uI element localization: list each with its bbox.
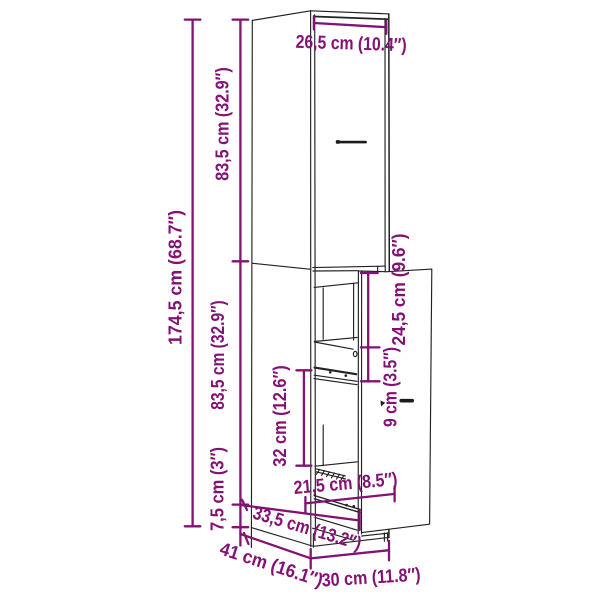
svg-text:174,5 cm (68.7″): 174,5 cm (68.7″)	[165, 210, 186, 345]
svg-text:32 cm (12.6″): 32 cm (12.6″)	[269, 365, 290, 467]
svg-text:7,5 cm (3″): 7,5 cm (3″)	[207, 447, 228, 531]
svg-text:83,5 cm (32.9″): 83,5 cm (32.9″)	[207, 300, 228, 410]
svg-text:26,5 cm (10.4″): 26,5 cm (10.4″)	[295, 31, 407, 55]
svg-text:9 cm (3.5″): 9 cm (3.5″)	[380, 347, 401, 427]
svg-text:83,5 cm (32.9″): 83,5 cm (32.9″)	[212, 67, 233, 181]
svg-text:24,5 cm (9.6″): 24,5 cm (9.6″)	[388, 234, 409, 346]
